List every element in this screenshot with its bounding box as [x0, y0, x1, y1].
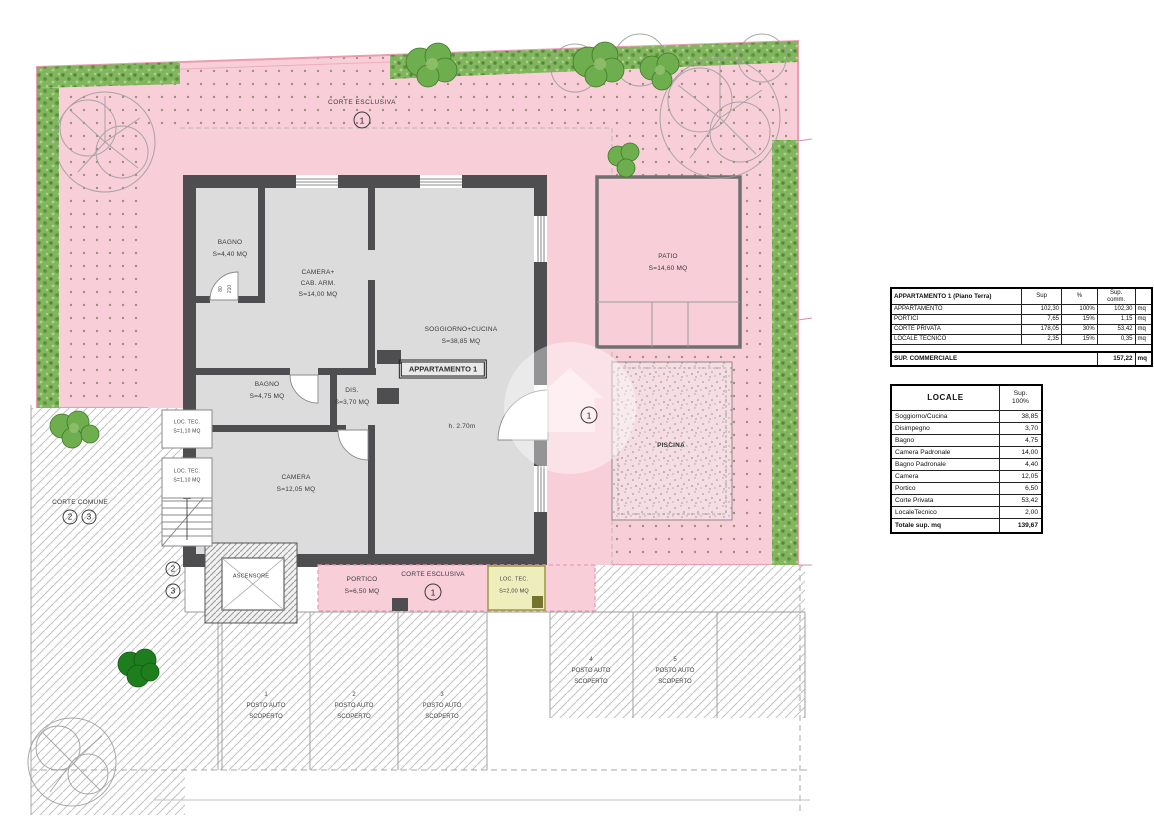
portico-area: S=6,50 MQ — [345, 589, 380, 596]
total-row: Totale sup. mq 139,67 — [891, 519, 1042, 534]
row-label: Soggiorno/Cucina — [891, 411, 999, 423]
col-unit — [1135, 288, 1152, 305]
total-value: 139,67 — [999, 519, 1042, 534]
row-unit: mq — [1135, 335, 1152, 345]
door-width-dim: 80 — [218, 286, 224, 292]
stall-line2: SCOPERTO — [423, 711, 462, 722]
bagno-padronale-label: BAGNO — [218, 240, 242, 247]
disimpegno-label: DIS. — [345, 388, 358, 395]
row-label: Corte Privata — [891, 495, 999, 507]
ceiling-height-note: h. 2.70m — [449, 424, 476, 431]
locale-tecnico-a-area: S=1,10 MQ — [173, 430, 200, 435]
col-sup: Sup — [1022, 288, 1062, 305]
piscina-label: PISCINA — [657, 443, 685, 450]
bagno-padronale-area: S=4,40 MQ — [213, 252, 248, 259]
locale-tecnico-a-label: LOC. TEC. — [174, 421, 200, 426]
row-value: 12,05 — [999, 471, 1042, 483]
row-value: 6,50 — [999, 483, 1042, 495]
stairs-number-2: 2 — [166, 562, 181, 577]
table-row: APPARTAMENTO 102,30 100% 102,30 mq — [891, 305, 1152, 315]
table-row: Soggiorno/Cucina38,85 — [891, 411, 1042, 423]
apartment-summary-table: APPARTAMENTO 1 (Piano Terra) Sup % Sup. … — [890, 287, 1153, 367]
table-row: Bagno4,75 — [891, 435, 1042, 447]
table-row: Corte Privata53,42 — [891, 495, 1042, 507]
row-value: 14,00 — [999, 447, 1042, 459]
stall-line1: POSTO AUTO — [656, 666, 695, 677]
row-sup: 178,05 — [1022, 325, 1062, 335]
row-label: Camera Padronale — [891, 447, 999, 459]
dimension-ticks — [798, 139, 812, 565]
locale-tecnico-area: S=2,00 MQ — [499, 589, 529, 595]
row-unit: mq — [1135, 305, 1152, 315]
total-value: 157,22 — [1097, 352, 1135, 366]
row-pct: 15% — [1062, 335, 1098, 345]
row-comm: 53,42 — [1097, 325, 1135, 335]
row-value: 3,70 — [999, 423, 1042, 435]
stall-line2: SCOPERTO — [247, 711, 286, 722]
row-pct: 100% — [1062, 305, 1098, 315]
row-label: Bagno Padronale — [891, 459, 999, 471]
stall-line1: POSTO AUTO — [423, 701, 462, 712]
bagno-area: S=4,75 MQ — [250, 394, 285, 401]
row-sup: 102,30 — [1022, 305, 1062, 315]
col-comm-line1: Sup. — [1100, 290, 1133, 297]
row-value: 4,40 — [999, 459, 1042, 471]
camera-cabina-label-2: CAB. ARM. — [301, 281, 336, 288]
row-comm: 1,15 — [1097, 315, 1135, 325]
total-label: Totale sup. mq — [891, 519, 999, 534]
row-pct: 30% — [1062, 325, 1098, 335]
table-row: CORTE PRIVATA 178,05 30% 53,42 mq — [891, 325, 1152, 335]
patio-area — [597, 177, 740, 347]
row-unit: mq — [1135, 325, 1152, 335]
apartment-tag: APPARTAMENTO 1 — [401, 362, 485, 377]
parking-stall-1-label: 1 POSTO AUTO SCOPERTO — [247, 690, 286, 722]
stall-number: 5 — [656, 655, 695, 666]
bagno-label: BAGNO — [255, 382, 279, 389]
row-label: LOCALE TECNICO — [891, 335, 1022, 345]
table-header-row: APPARTAMENTO 1 (Piano Terra) Sup % Sup. … — [891, 288, 1152, 305]
row-pct: 15% — [1062, 315, 1098, 325]
corte-esclusiva-bottom-label: CORTE ESCLUSIVA — [401, 572, 464, 579]
camera-area: S=12,05 MQ — [277, 487, 316, 494]
table-row: Bagno Padronale4,40 — [891, 459, 1042, 471]
entrance-number: 1 — [581, 407, 598, 424]
table-row: PORTICI 7,65 15% 1,15 mq — [891, 315, 1152, 325]
total-row: SUP. COMMERCIALE 157,22 mq — [891, 352, 1152, 366]
col-sup: Sup. 100% — [999, 385, 1042, 411]
stall-line1: POSTO AUTO — [247, 701, 286, 712]
col-sup-line2: 100% — [1003, 398, 1038, 406]
door-height-dim: 210 — [227, 285, 233, 293]
row-sup: 2,35 — [1022, 335, 1062, 345]
row-value: 38,85 — [999, 411, 1042, 423]
row-label: APPARTAMENTO — [891, 305, 1022, 315]
row-value: 2,00 — [999, 507, 1042, 519]
table-row: Disimpegno3,70 — [891, 423, 1042, 435]
table-row: Portico6,50 — [891, 483, 1042, 495]
stall-line1: POSTO AUTO — [572, 666, 611, 677]
total-unit: mq — [1135, 352, 1152, 366]
building-walls — [183, 175, 548, 567]
row-value: 4,75 — [999, 435, 1042, 447]
camera-label: CAMERA — [281, 475, 310, 482]
row-unit: mq — [1135, 315, 1152, 325]
table-row: Camera Padronale14,00 — [891, 447, 1042, 459]
row-comm: 102,30 — [1097, 305, 1135, 315]
house-watermark-icon — [504, 342, 636, 474]
stall-number: 1 — [247, 690, 286, 701]
camera-cabina-label-1: CAMERA+ — [301, 270, 334, 277]
stall-number: 4 — [572, 655, 611, 666]
table-title: APPARTAMENTO 1 (Piano Terra) — [891, 288, 1022, 305]
stall-line2: SCOPERTO — [656, 676, 695, 687]
soggiorno-area: S=38,85 MQ — [442, 339, 481, 346]
soggiorno-label: SOGGIORNO+CUCINA — [425, 327, 498, 334]
row-label: Portico — [891, 483, 999, 495]
locale-tecnico-label: LOC. TEC. — [500, 577, 529, 583]
floor-plan-page: CORTE ESCLUSIVA 1 BAGNO S=4,40 MQ CAMERA… — [0, 0, 1154, 816]
locale-tecnico-b-area: S=1,10 MQ — [173, 479, 200, 484]
table-row: LOCALE TECNICO 2,35 15% 0,35 mq — [891, 335, 1152, 345]
row-label: Disimpegno — [891, 423, 999, 435]
col-pct: % — [1062, 288, 1098, 305]
locale-tecnico-b-label: LOC. TEC. — [174, 470, 200, 475]
portico-label: PORTICO — [347, 577, 378, 584]
corte-esclusiva-top-number: 1 — [354, 112, 371, 129]
stairs-number-3: 3 — [166, 584, 181, 599]
corte-comune-number-2: 2 — [63, 510, 78, 525]
disimpegno-area: S=3,70 MQ — [335, 400, 370, 407]
row-label: Bagno — [891, 435, 999, 447]
col-sup-line1: Sup. — [1003, 390, 1038, 398]
camera-cabina-area: S=14,00 MQ — [299, 292, 338, 299]
table-header-row: LOCALE Sup. 100% — [891, 385, 1042, 411]
parking-stall-2-label: 2 POSTO AUTO SCOPERTO — [335, 690, 374, 722]
corte-comune-number-3: 3 — [82, 510, 97, 525]
row-sup: 7,65 — [1022, 315, 1062, 325]
table-row: Camera12,05 — [891, 471, 1042, 483]
row-comm: 0,35 — [1097, 335, 1135, 345]
stall-line1: POSTO AUTO — [335, 701, 374, 712]
room-areas-table: LOCALE Sup. 100% Soggiorno/Cucina38,85 D… — [890, 384, 1043, 534]
row-label: LocaleTecnico — [891, 507, 999, 519]
ascensore-label: ASCENSORE — [233, 574, 269, 580]
stall-number: 2 — [335, 690, 374, 701]
stall-line2: SCOPERTO — [572, 676, 611, 687]
stall-number: 3 — [423, 690, 462, 701]
row-label: PORTICI — [891, 315, 1022, 325]
stall-line2: SCOPERTO — [335, 711, 374, 722]
col-comm-line2: comm. — [1100, 297, 1133, 304]
corte-comune-label: CORTE COMUNE — [52, 500, 108, 507]
total-label: SUP. COMMERCIALE — [891, 352, 1097, 366]
row-label: Camera — [891, 471, 999, 483]
parking-stall-3-label: 3 POSTO AUTO SCOPERTO — [423, 690, 462, 722]
patio-area: S=14,60 MQ — [649, 266, 688, 273]
row-label: CORTE PRIVATA — [891, 325, 1022, 335]
parking-stall-4-label: 4 POSTO AUTO SCOPERTO — [572, 655, 611, 687]
col-comm: Sup. comm. — [1097, 288, 1135, 305]
elevator — [205, 543, 297, 623]
table-title: LOCALE — [891, 385, 999, 411]
spacer-row — [891, 345, 1152, 353]
parking-stall-5-label: 5 POSTO AUTO SCOPERTO — [656, 655, 695, 687]
corte-esclusiva-bottom-number: 1 — [425, 584, 442, 601]
row-value: 53,42 — [999, 495, 1042, 507]
table-row: LocaleTecnico2,00 — [891, 507, 1042, 519]
corte-esclusiva-top-label: CORTE ESCLUSIVA — [328, 100, 396, 107]
patio-label: PATIO — [658, 254, 678, 261]
